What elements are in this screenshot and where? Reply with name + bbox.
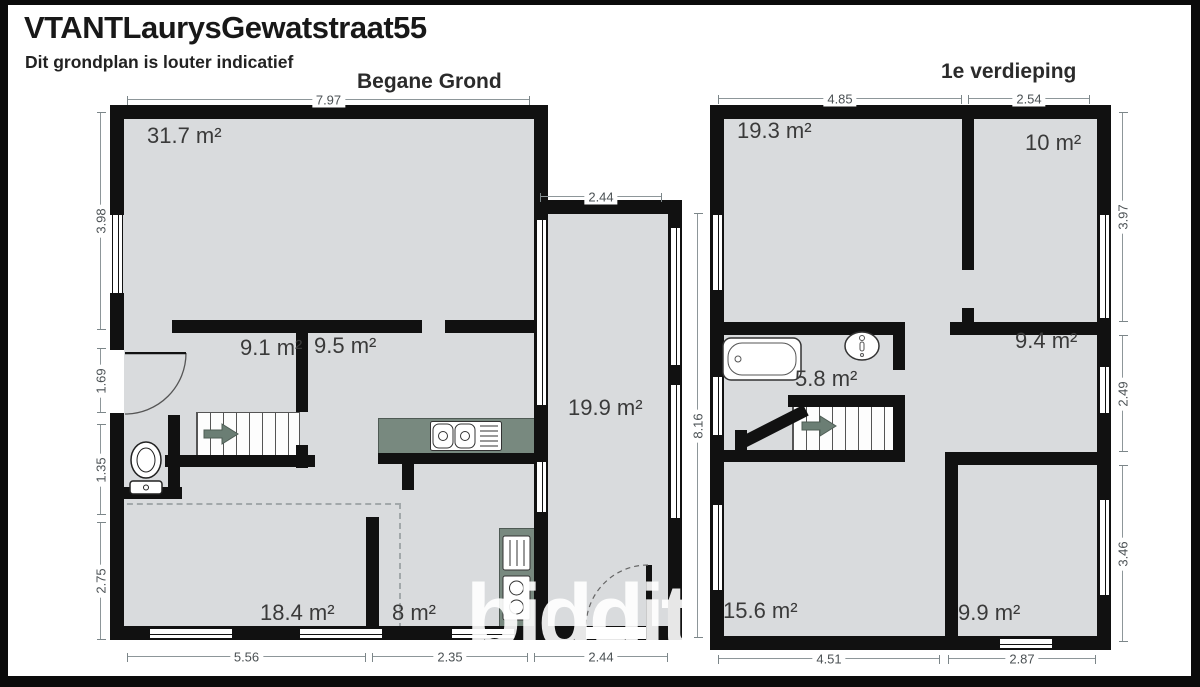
dimension: 8.16 <box>697 213 698 638</box>
window <box>712 505 723 590</box>
wall <box>893 322 905 370</box>
wall <box>110 293 124 350</box>
kitchen-sink-icon <box>430 421 502 451</box>
room-label: 9.9 m² <box>958 600 1020 626</box>
stove-oven-icon <box>499 528 534 628</box>
window <box>712 377 723 435</box>
dimension: 7.97 <box>127 99 530 100</box>
stair-direction-arrow-icon <box>800 414 838 438</box>
room-label: 9.4 m² <box>1015 328 1077 354</box>
floorplan-page: VTANTLaurysGewatstraat55 Dit grondplan i… <box>0 0 1200 687</box>
dimension: 2.87 <box>948 658 1096 659</box>
dimension: 1.35 <box>100 424 101 515</box>
page-subtitle: Dit grondplan is louter indicatief <box>25 52 293 73</box>
toilet-icon <box>124 441 168 497</box>
room-label: 19.3 m² <box>737 118 812 144</box>
dimension: 2.35 <box>372 656 528 657</box>
room-label: 9.1 m² <box>240 335 302 361</box>
window <box>1099 367 1110 413</box>
window <box>536 220 547 405</box>
stair-direction-arrow-icon <box>202 422 240 446</box>
wall <box>945 452 958 640</box>
window <box>452 628 514 639</box>
dimension: 2.54 <box>968 98 1090 99</box>
wall <box>710 105 1111 119</box>
dimension: 2.44 <box>534 656 668 657</box>
wall <box>445 320 534 333</box>
dimension: 3.98 <box>100 112 101 330</box>
wall <box>962 119 974 270</box>
wall <box>165 455 315 467</box>
dimension: 2.49 <box>1122 335 1123 452</box>
dashed-outline <box>117 503 401 629</box>
dimension: 4.51 <box>718 658 940 659</box>
entry-door-swing-icon <box>124 352 188 416</box>
window <box>712 215 723 290</box>
window <box>300 628 382 639</box>
wall <box>110 105 124 215</box>
window <box>1000 638 1052 649</box>
dimension: 3.46 <box>1122 465 1123 642</box>
dimension: 1.69 <box>100 348 101 413</box>
wall <box>710 450 905 462</box>
room-label: 18.4 m² <box>260 600 335 626</box>
window <box>1099 215 1110 318</box>
wall <box>110 413 124 640</box>
door-opening <box>110 350 124 413</box>
dimension: 2.44 <box>540 196 662 197</box>
window <box>536 462 547 512</box>
wall <box>402 453 414 490</box>
window <box>112 215 123 293</box>
rear-door-swing-icon <box>584 563 650 629</box>
dimension: 3.97 <box>1122 112 1123 322</box>
window <box>150 628 232 639</box>
wall <box>534 105 548 214</box>
room-label: 10 m² <box>1025 130 1081 156</box>
wall <box>366 517 379 640</box>
room-label: 15.6 m² <box>723 598 798 624</box>
page-title: VTANTLaurysGewatstraat55 <box>24 10 427 46</box>
wall <box>296 320 308 412</box>
wall <box>945 452 1097 465</box>
ground-floor-title: Begane Grond <box>357 70 502 94</box>
room-label: 8 m² <box>392 600 436 626</box>
room-label: 31.7 m² <box>147 123 222 149</box>
dimension: 5.56 <box>127 656 366 657</box>
bathtub-icon <box>722 337 802 381</box>
dimension: 4.85 <box>718 98 962 99</box>
room-label: 9.5 m² <box>314 333 376 359</box>
window <box>670 385 681 518</box>
room-label: 19.9 m² <box>568 395 643 421</box>
washbasin-icon <box>843 330 881 362</box>
room-label: 5.8 m² <box>795 366 857 392</box>
window <box>670 228 681 365</box>
window <box>1099 500 1110 595</box>
first-floor-title: 1e verdieping <box>941 60 1076 84</box>
dimension: 2.75 <box>100 522 101 640</box>
